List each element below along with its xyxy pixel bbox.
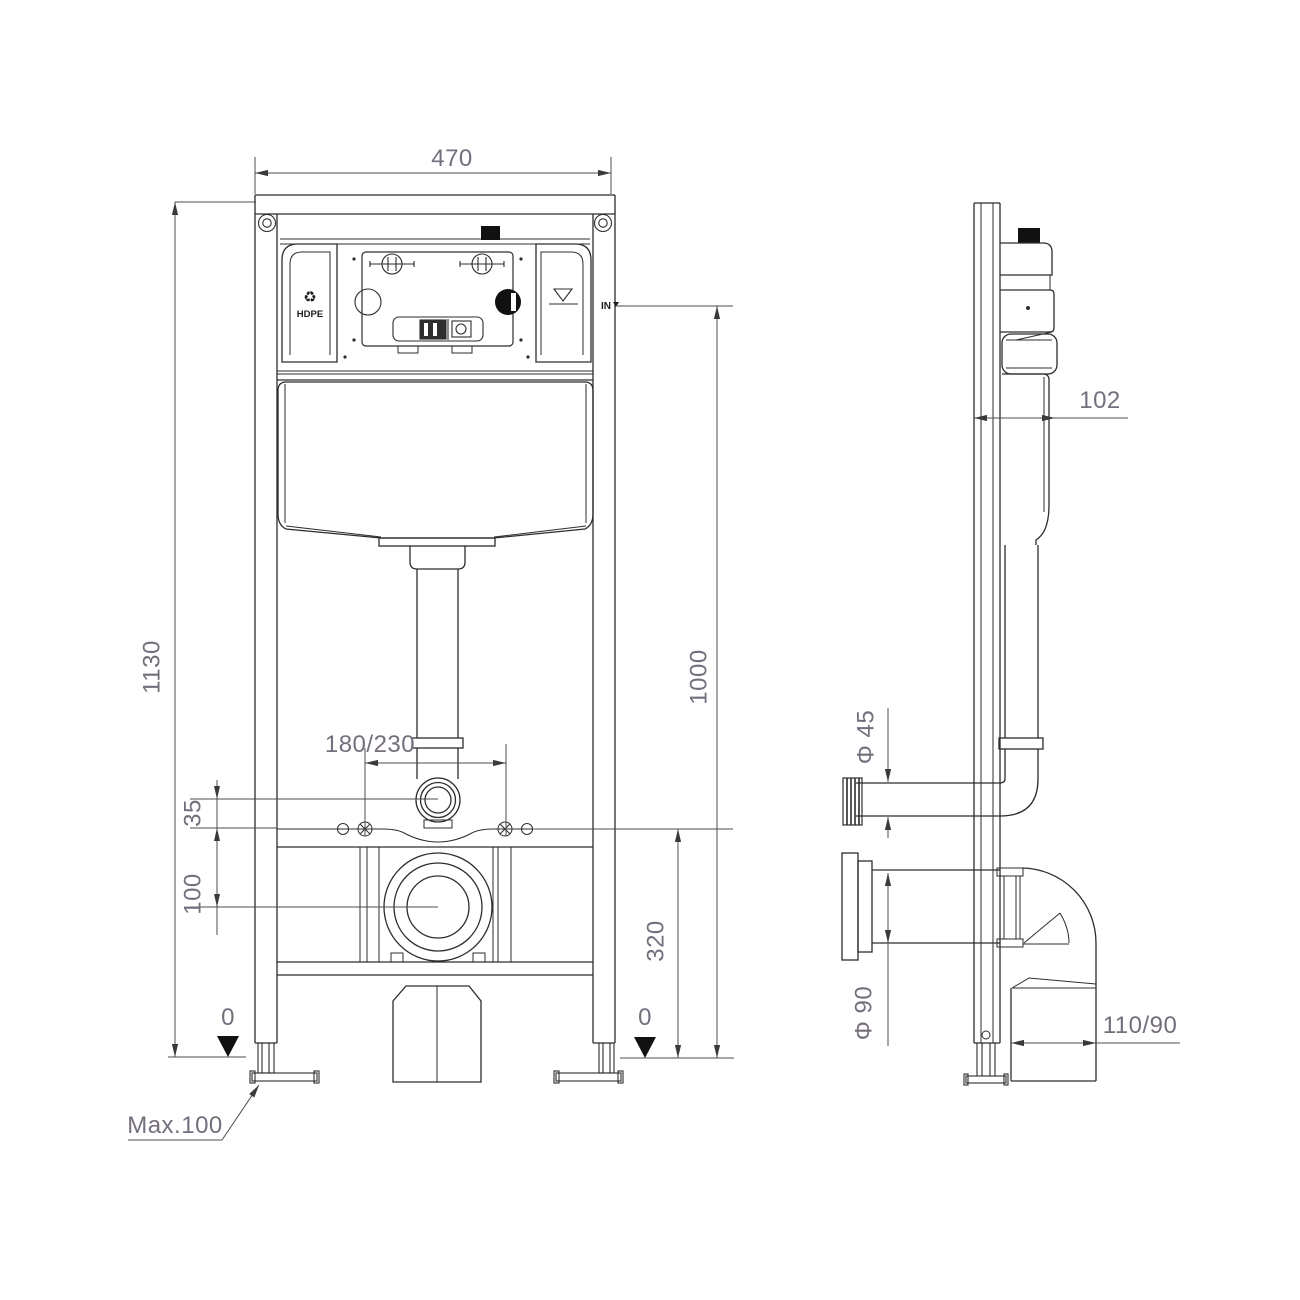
dim-180-230-label: 180/230: [325, 731, 415, 758]
side-frame-rail: [974, 203, 1000, 1043]
waste-pipe-side: [842, 853, 1096, 1081]
dimensions: 470 1130 1000 320 35: [127, 145, 1180, 1140]
front-left-foot: [250, 1043, 319, 1083]
dim-1000-label: 1000: [686, 649, 713, 704]
inlet-marker: IN: [601, 301, 619, 312]
waste-hub: [997, 868, 1023, 947]
dim-110-90-label: 110/90: [1103, 1012, 1178, 1039]
dim-phi45-label: Φ 45: [853, 710, 880, 765]
inlet-knob: [481, 226, 500, 240]
flush-pipe-front: [410, 546, 465, 828]
flush-elbow: [416, 778, 460, 822]
flush-valve-port: [355, 289, 381, 315]
datum-triangle-icon: [634, 1037, 656, 1058]
front-right-foot: [554, 1043, 623, 1083]
inlet-label: IN: [601, 301, 611, 312]
waste-elbow: [1011, 868, 1096, 1081]
side-view: [842, 203, 1096, 1085]
datum-triangle-icon: [217, 1036, 239, 1057]
datum-left: 0: [168, 1004, 246, 1057]
hdpe-logo: ♻ HDPE: [297, 289, 323, 320]
lower-frame: [277, 847, 593, 1082]
dim-phi-45: Φ 45: [853, 708, 889, 838]
dim-height-1130: 1130: [139, 202, 257, 1057]
waste-bend-front: [393, 986, 481, 1082]
dim-bolt-spacing: 180/230: [325, 731, 506, 836]
waste-pipe-flange: [842, 853, 858, 960]
dim-470-label: 470: [431, 145, 473, 172]
dim-102-label: 102: [1079, 387, 1121, 414]
inlet-knob-side: [1018, 228, 1040, 243]
datum-left-label: 0: [221, 1004, 235, 1031]
cistern-frame-drawing: ♻ HDPE IN: [0, 0, 1300, 1300]
adjuster-screw-icon: [370, 254, 414, 274]
dim-depth-102: 102: [974, 387, 1128, 418]
flush-mechanism: [393, 317, 483, 341]
cistern-front: ♻ HDPE IN: [277, 226, 619, 1082]
adjuster-screw-icon: [460, 254, 504, 274]
corner-screw-icon: [259, 215, 276, 232]
dim-phi90-label: Φ 90: [851, 986, 878, 1041]
side-foot: [964, 1043, 1008, 1085]
corner-screw-icon: [595, 215, 612, 232]
filling-valve-port: [495, 289, 521, 315]
dim-width-470: 470: [255, 145, 611, 194]
flush-pipe-gasket: [843, 778, 862, 825]
recycle-icon: ♻: [303, 289, 316, 306]
hdpe-label: HDPE: [297, 309, 323, 320]
dim-outlet-320: 320: [533, 829, 733, 1058]
dim-1130-label: 1130: [139, 640, 166, 694]
water-level-icon: [549, 289, 578, 304]
flush-pipe-side: [843, 545, 1043, 825]
cistern-side: [1000, 228, 1057, 545]
technical-drawing-page: ♻ HDPE IN: [0, 0, 1300, 1300]
datum-right-label: 0: [638, 1004, 652, 1031]
dim-max-100: Max.100: [127, 1085, 259, 1140]
tank-body: [278, 382, 593, 546]
dim-100-label: 100: [180, 873, 207, 915]
dim-inlet-1000: 1000: [617, 306, 733, 1058]
max-100-label: Max.100: [127, 1112, 223, 1139]
front-view: ♻ HDPE IN: [250, 195, 623, 1083]
dim-35-label: 35: [180, 799, 207, 827]
inspection-panel: [352, 252, 522, 353]
fixing-bolt-rail: [277, 822, 593, 842]
dim-320-label: 320: [643, 920, 670, 962]
